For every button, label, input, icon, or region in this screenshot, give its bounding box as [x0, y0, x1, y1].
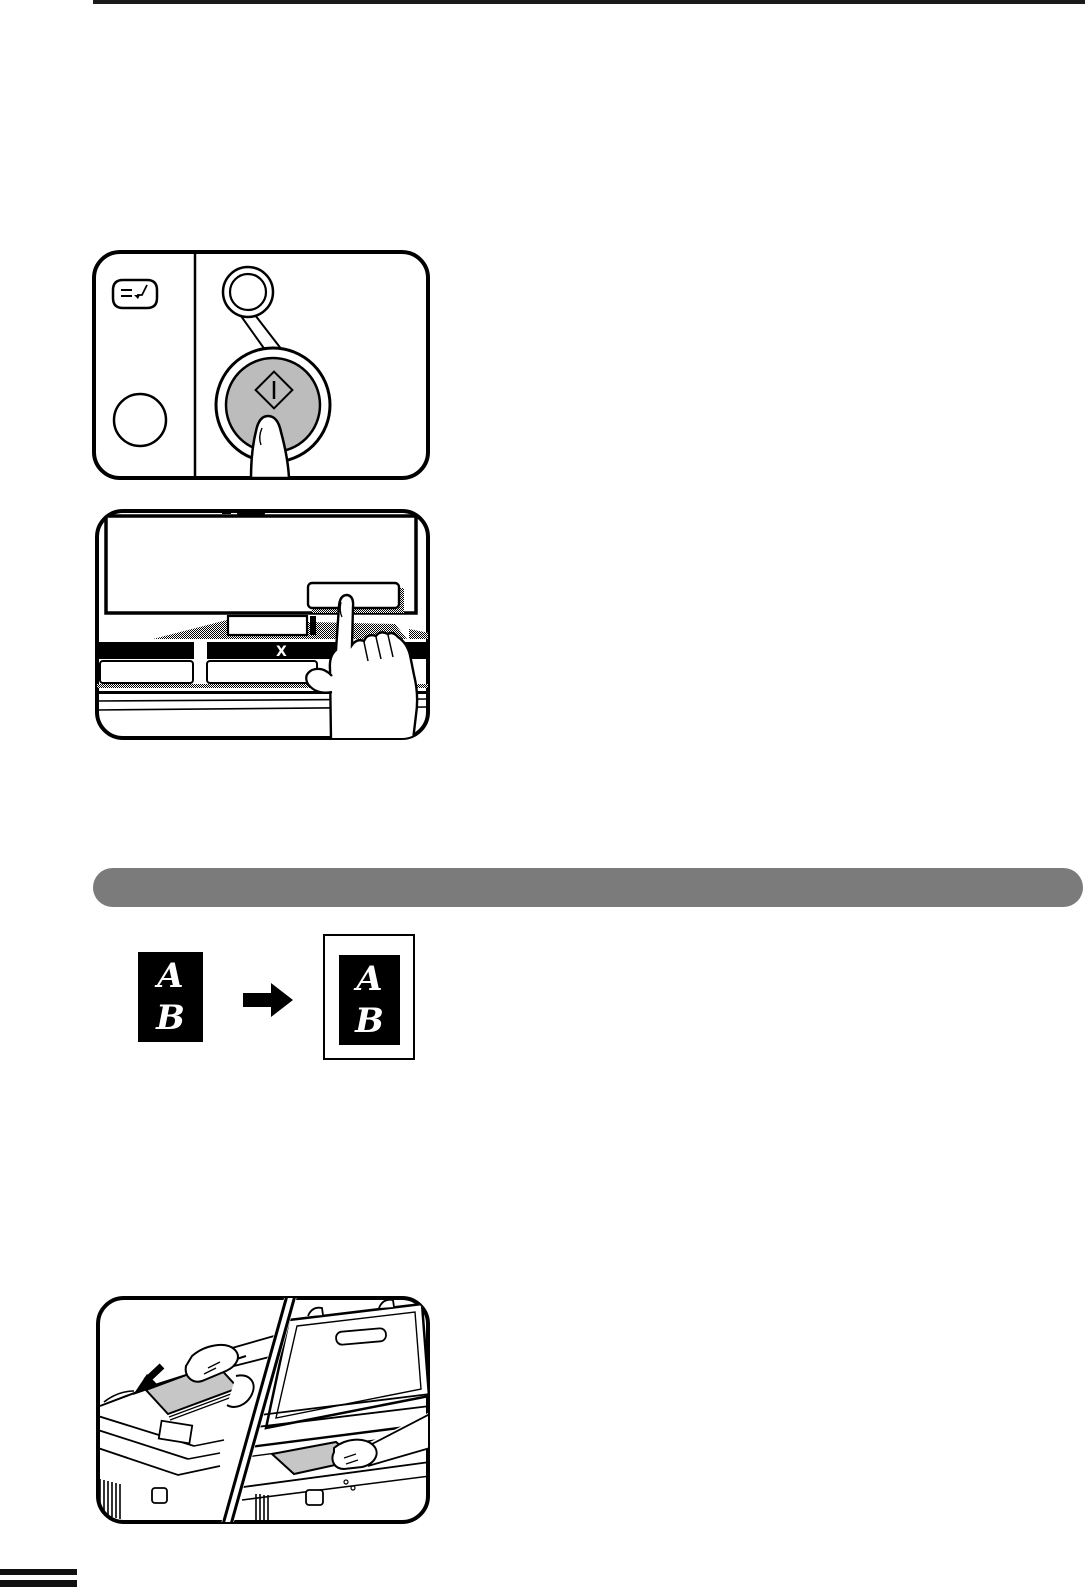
- zoom-indicator-label: X: [276, 644, 287, 660]
- copy-letter-b: B: [355, 1000, 384, 1042]
- start-key-svg: [92, 250, 430, 480]
- clear-key-icon: [114, 394, 166, 446]
- original-letter-a: A: [157, 955, 183, 997]
- figure-start-key: [92, 250, 430, 480]
- original-letter-b: B: [156, 997, 185, 1039]
- copy-sheet: A B: [323, 934, 415, 1060]
- right-arrow-icon: [243, 981, 293, 1019]
- section-header-bar: [93, 868, 1083, 907]
- interrupt-key-icon: [113, 280, 157, 308]
- copy-letter-a: A: [356, 958, 382, 1000]
- page-edge-tab: [0, 1569, 77, 1575]
- original-sheet: A B: [138, 952, 203, 1042]
- touch-panel-svg: X: [95, 509, 430, 740]
- page-edge-tab: [0, 1580, 77, 1587]
- figure-set-originals: [96, 1296, 430, 1524]
- figure-touch-panel: X: [95, 509, 430, 740]
- copy-image-area: A B: [339, 955, 400, 1045]
- set-originals-svg: [96, 1296, 430, 1524]
- manual-page: X: [0, 0, 1085, 1587]
- top-rule: [93, 0, 1085, 4]
